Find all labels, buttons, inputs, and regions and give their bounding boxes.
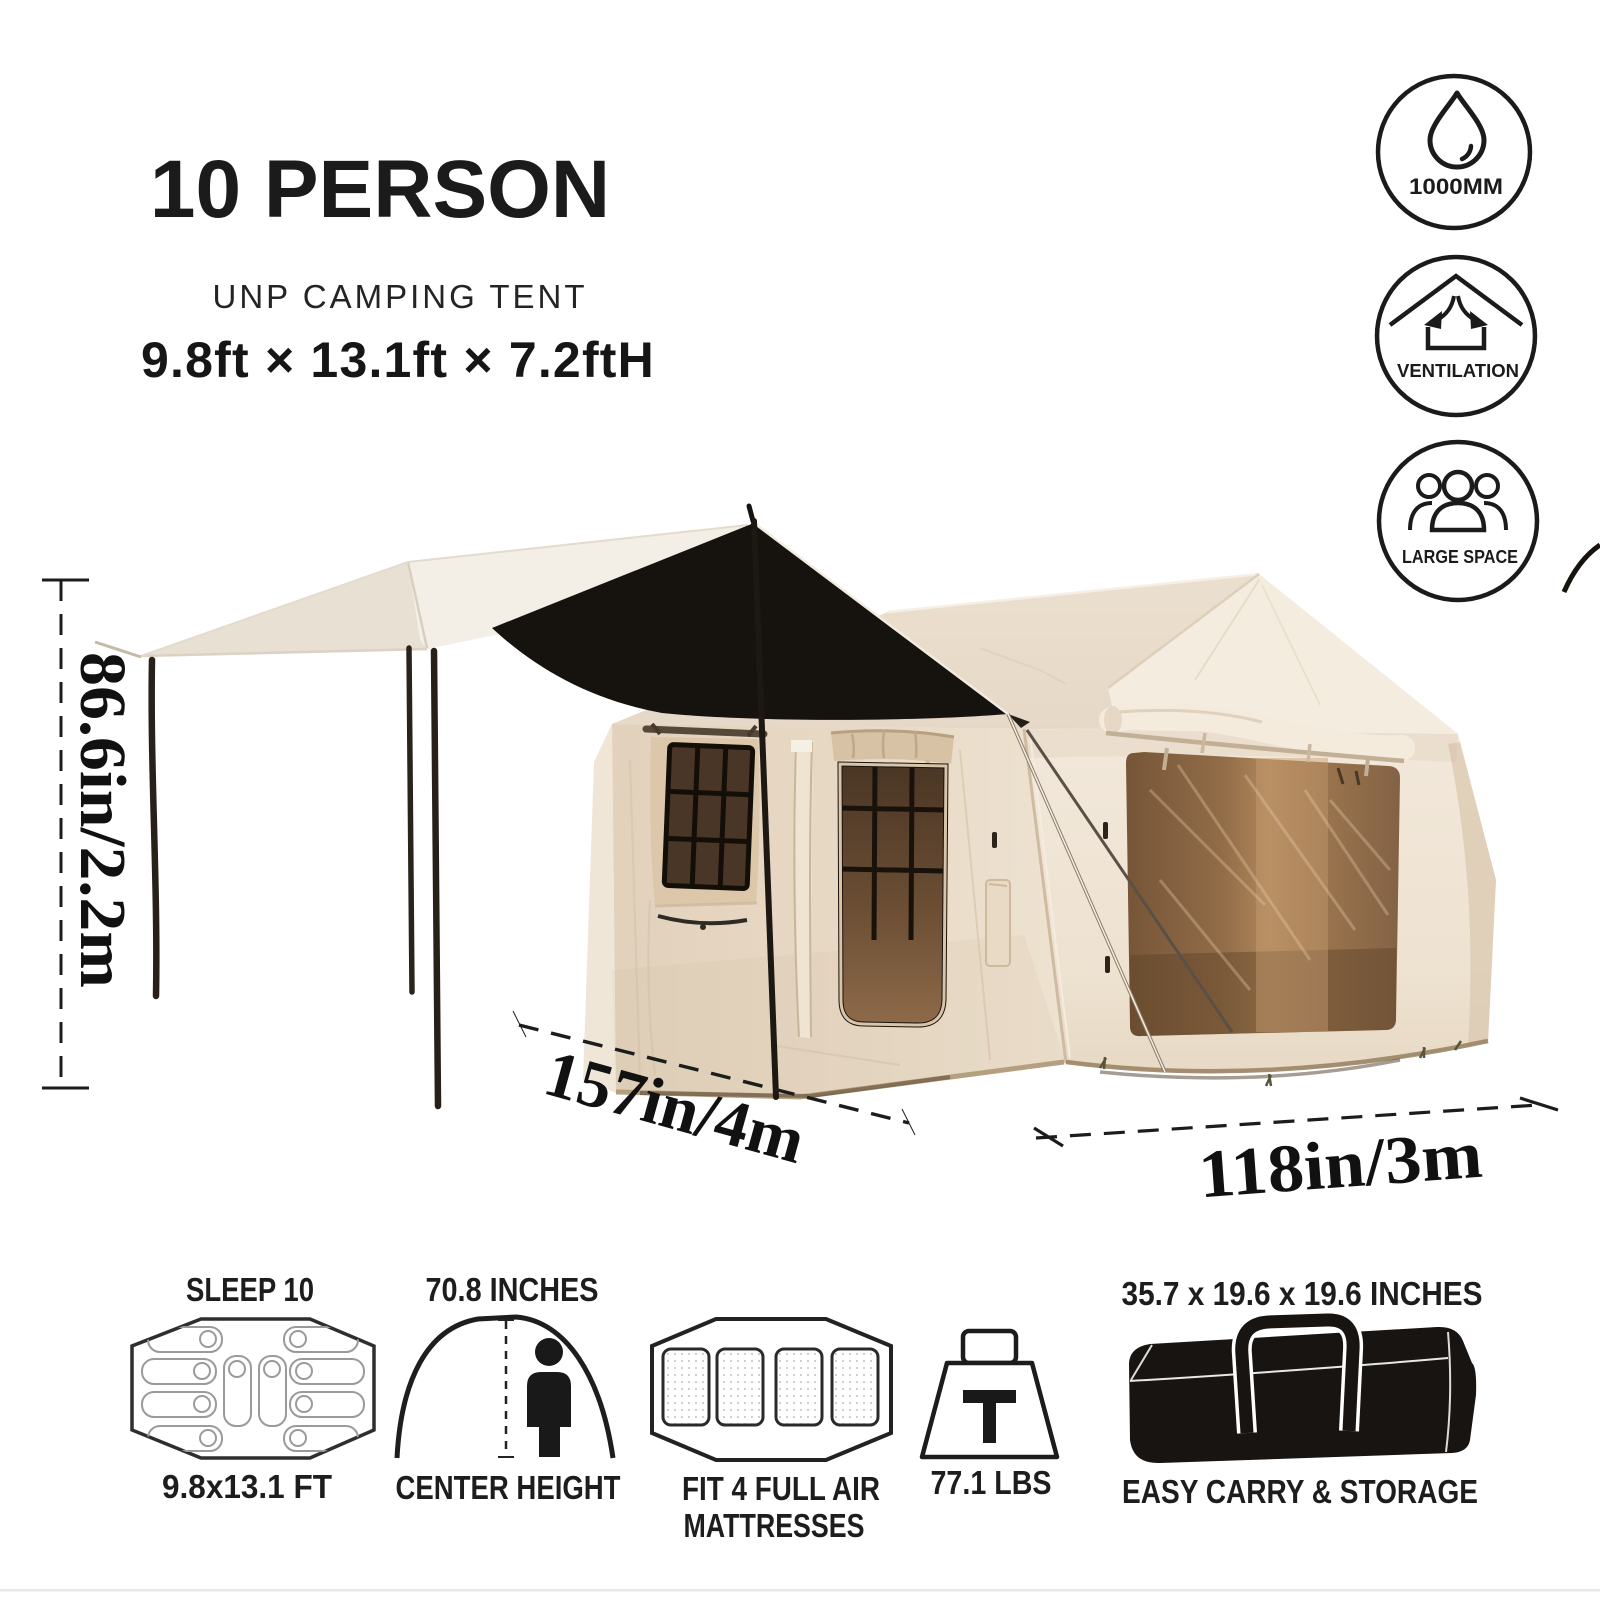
svg-text:VENTILATION: VENTILATION [1397, 361, 1519, 381]
svg-text:70.8 INCHES: 70.8 INCHES [426, 1271, 599, 1308]
svg-text:LARGE SPACE: LARGE SPACE [1402, 547, 1518, 567]
svg-text:1000MM: 1000MM [1409, 174, 1503, 199]
svg-text:CENTER HEIGHT: CENTER HEIGHT [396, 1469, 621, 1506]
svg-text:FIT 4 FULL AIR: FIT 4 FULL AIR [682, 1470, 880, 1507]
svg-text:EASY CARRY & STORAGE: EASY CARRY & STORAGE [1122, 1473, 1478, 1510]
svg-text:118in/3m: 118in/3m [1196, 1116, 1485, 1213]
svg-text:UNP CAMPING TENT: UNP CAMPING TENT [213, 278, 588, 315]
svg-text:35.7 x 19.6 x 19.6 INCHES: 35.7 x 19.6 x 19.6 INCHES [1122, 1275, 1483, 1312]
svg-text:SLEEP 10: SLEEP 10 [186, 1271, 314, 1308]
svg-text:9.8x13.1 FT: 9.8x13.1 FT [162, 1468, 332, 1505]
svg-text:MATTRESSES: MATTRESSES [684, 1507, 865, 1544]
svg-text:10 PERSON: 10 PERSON [150, 144, 610, 235]
svg-text:9.8ft × 13.1ft × 7.2ftH: 9.8ft × 13.1ft × 7.2ftH [141, 332, 655, 388]
svg-text:86.6in/2.2m: 86.6in/2.2m [66, 652, 139, 988]
svg-text:77.1 LBS: 77.1 LBS [931, 1464, 1052, 1501]
